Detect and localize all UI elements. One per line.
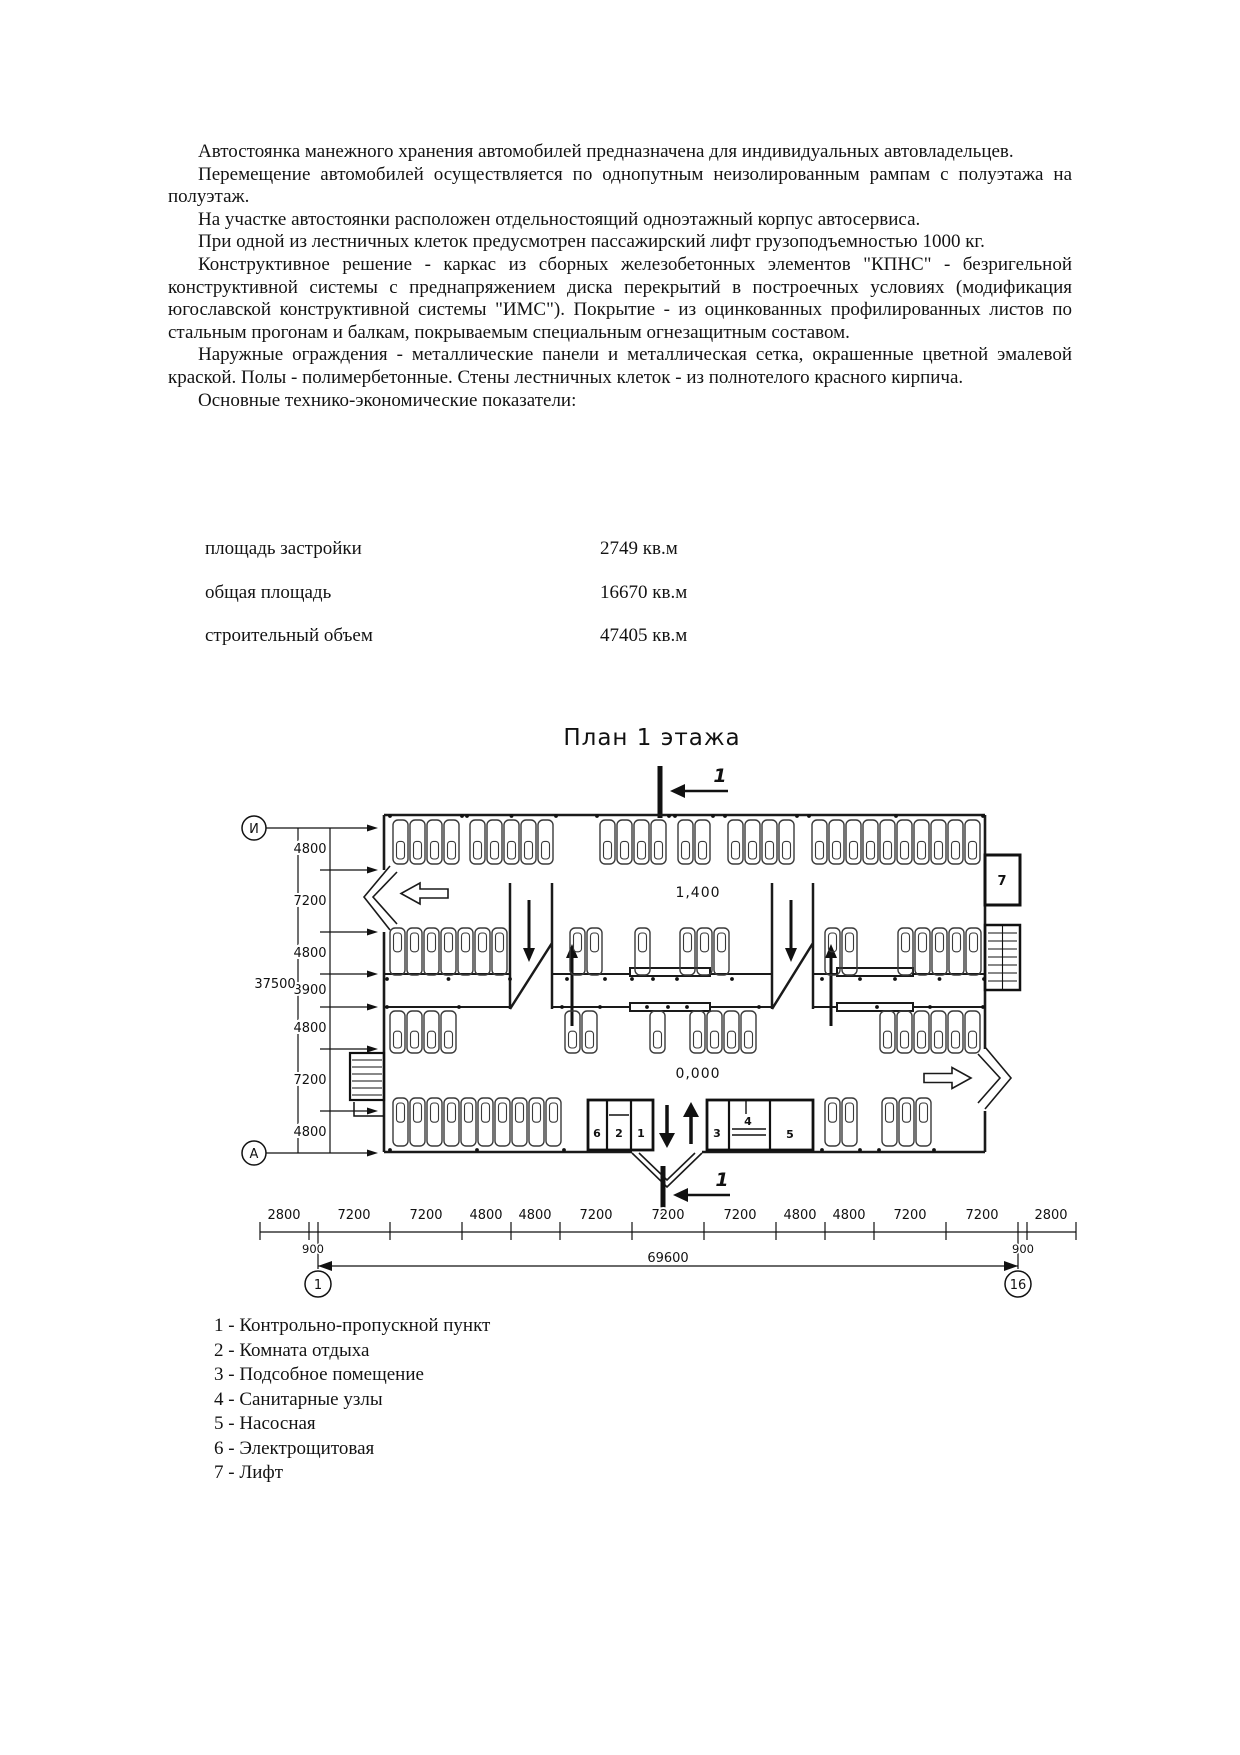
entry-arrow-icon [401, 883, 448, 904]
dim-label: 4800 [469, 1208, 502, 1223]
paragraph: На участке автостоянки расположен отдель… [168, 209, 1072, 232]
exit-notch [924, 1047, 1011, 1109]
sub-dim-label: 900 [302, 1242, 324, 1256]
document-page: Автостоянка манежного хранения автомобил… [0, 0, 1240, 1755]
dim-label: 7200 [723, 1208, 756, 1223]
axis-label-top: И [249, 822, 259, 837]
dim-label: 7200 [409, 1208, 442, 1223]
dim-label: 7200 [579, 1208, 612, 1223]
dim-label: 2800 [1034, 1208, 1067, 1223]
indicator-label: строительный объем [205, 625, 600, 648]
legend-item: 6 - Электрощитовая [214, 1437, 490, 1462]
room-number-4: 4 [744, 1115, 752, 1128]
dim-label: 4800 [293, 946, 326, 961]
sub-dim-label: 900 [1012, 1242, 1034, 1256]
stairwell-right [985, 925, 1020, 990]
section-number: 1 [713, 765, 726, 787]
dim-label: 4800 [783, 1208, 816, 1223]
legend-item: 5 - Насосная [214, 1412, 490, 1437]
room-number-2: 2 [615, 1127, 623, 1140]
axis-label-last: 16 [1010, 1278, 1027, 1293]
dim-label: 4800 [293, 842, 326, 857]
indicator-value: 16670 кв.м [600, 582, 905, 605]
up-arrow-icon [683, 1102, 699, 1117]
bottom-entrance-notch [632, 1153, 702, 1187]
floor-plan-drawing: План 1 этажа 1 [180, 688, 1080, 1338]
legend-item: 7 - Лифт [214, 1461, 490, 1486]
room-number-3: 3 [713, 1127, 721, 1140]
dim-label: 4800 [293, 1125, 326, 1140]
room-number-6: 6 [593, 1127, 601, 1140]
stairwell-left [350, 1053, 384, 1116]
parking-stalls [385, 814, 986, 1152]
dim-label: 7200 [965, 1208, 998, 1223]
dim-label: 7200 [293, 1073, 326, 1088]
down-arrow-icon [659, 1133, 675, 1148]
section-mark-top: 1 [660, 765, 728, 818]
dim-label: 4800 [832, 1208, 865, 1223]
dim-label: 2800 [267, 1208, 300, 1223]
exit-arrow-icon [924, 1068, 971, 1089]
plan-legend: 1 - Контрольно-пропускной пункт 2 - Комн… [214, 1314, 490, 1486]
paragraph: Наружные ограждения - металлические пане… [168, 344, 1072, 389]
section-number: 1 [715, 1169, 728, 1191]
indicator-value: 47405 кв.м [600, 625, 905, 648]
down-arrow-icon [785, 948, 797, 962]
legend-item: 2 - Комната отдыха [214, 1339, 490, 1364]
entry-notch [364, 866, 448, 930]
indicator-row: общая площадь 16670 кв.м [205, 582, 905, 605]
paragraph: При одной из лестничных клеток предусмот… [168, 231, 1072, 254]
dim-label: 7200 [337, 1208, 370, 1223]
indicator-label: общая площадь [205, 582, 600, 605]
indicators-table: площадь застройки 2749 кв.м общая площад… [205, 538, 905, 669]
up-arrow-icon [566, 944, 578, 958]
paragraph: Перемещение автомобилей осуществляется п… [168, 164, 1072, 209]
body-text: Автостоянка манежного хранения автомобил… [168, 141, 1072, 412]
level-mark-upper: 1,400 [675, 885, 720, 901]
dim-label: 3900 [293, 983, 326, 998]
room-number-7: 7 [997, 874, 1006, 889]
dim-label: 7200 [651, 1208, 684, 1223]
dim-label: 4800 [518, 1208, 551, 1223]
indicator-label: площадь застройки [205, 538, 600, 561]
level-mark-ground: 0,000 [675, 1066, 720, 1082]
indicator-row: строительный объем 47405 кв.м [205, 625, 905, 648]
axis-label-bottom: А [250, 1147, 259, 1162]
dim-total-left: 37500 [254, 977, 295, 992]
indicator-value: 2749 кв.м [600, 538, 905, 561]
service-rooms [588, 1100, 813, 1150]
legend-item: 4 - Санитарные узлы [214, 1388, 490, 1413]
dim-label: 7200 [893, 1208, 926, 1223]
axis-label-first: 1 [314, 1278, 322, 1293]
dim-label: 4800 [293, 1021, 326, 1036]
plan-title: План 1 этажа [563, 725, 740, 751]
building-outline [384, 815, 985, 1152]
legend-item: 3 - Подсобное помещение [214, 1363, 490, 1388]
indicators-intro: Основные технико-экономические показател… [168, 390, 1072, 413]
down-arrow-icon [523, 948, 535, 962]
bottom-ramp-arrows [659, 1102, 699, 1148]
room-number-1: 1 [637, 1127, 645, 1140]
paragraph: Конструктивное решение - каркас из сборн… [168, 254, 1072, 344]
paragraph: Автостоянка манежного хранения автомобил… [168, 141, 1072, 164]
room-number-5: 5 [786, 1128, 794, 1141]
ramp-walls [510, 883, 813, 1009]
dim-total-bottom: 69600 [647, 1251, 688, 1266]
indicator-row: площадь застройки 2749 кв.м [205, 538, 905, 561]
legend-item: 1 - Контрольно-пропускной пункт [214, 1314, 490, 1339]
dim-label: 7200 [293, 894, 326, 909]
